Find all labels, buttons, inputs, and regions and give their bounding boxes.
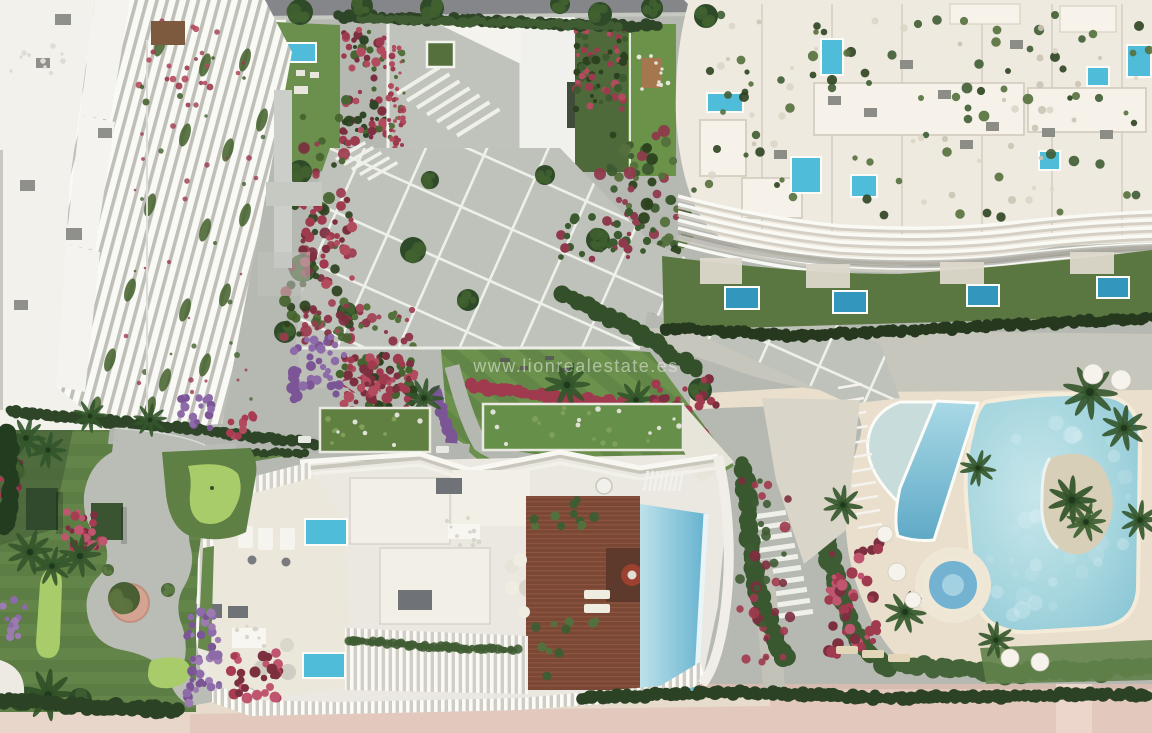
svg-text:www.lionrealestate.es: www.lionrealestate.es — [472, 356, 679, 376]
